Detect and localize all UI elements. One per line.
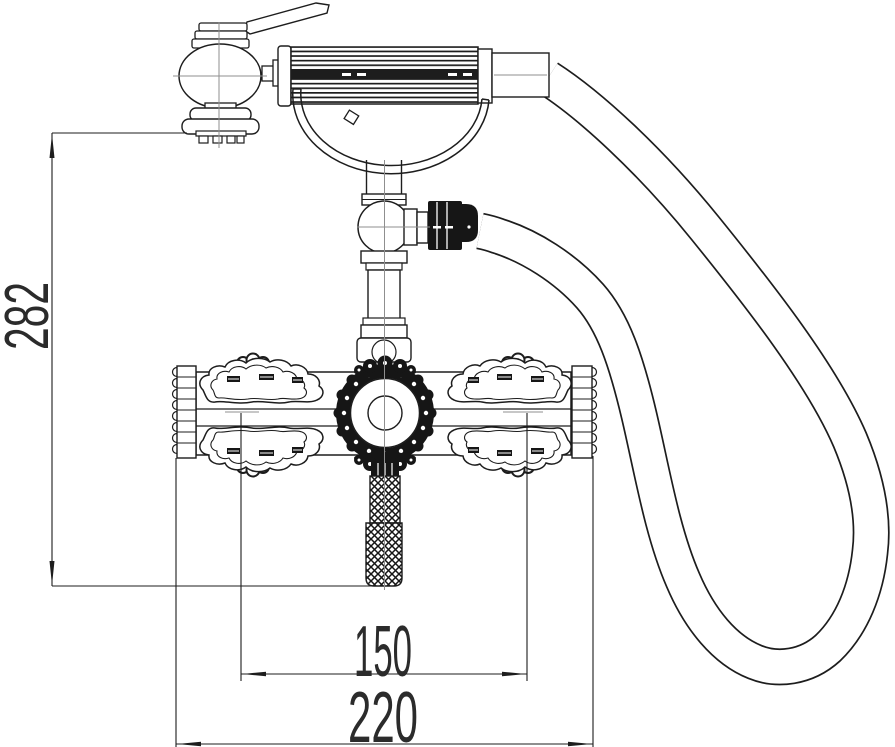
- hose-port-nut: [404, 201, 478, 250]
- dimension-label-282: 282: [0, 282, 62, 350]
- arrow-left-icon: [242, 672, 266, 677]
- dimension-282: 282: [0, 133, 374, 586]
- diverter-lever: [244, 3, 329, 34]
- arrow-up-icon: [50, 134, 55, 158]
- cloud-top-right: [448, 354, 571, 403]
- arrow-left-icon: [177, 742, 201, 747]
- faucet-drawing-canvas: 282 150 220: [0, 0, 895, 747]
- cloud-bottom-left: [200, 427, 323, 476]
- right-end-cap: [572, 366, 597, 458]
- arrow-right-icon: [502, 672, 526, 677]
- dimension-label-220: 220: [348, 678, 418, 747]
- cloud-bottom-right: [448, 427, 571, 476]
- technical-drawing-page: 282 150 220: [0, 0, 895, 747]
- diverter-tee: [354, 160, 478, 378]
- left-end-cap: [173, 366, 197, 458]
- arrow-down-icon: [50, 561, 55, 585]
- arrow-right-icon: [568, 742, 592, 747]
- spray-nozzles: [199, 136, 244, 143]
- cradle-clip: [344, 110, 359, 124]
- hand-shower-grip: [262, 46, 549, 106]
- cloud-top-left: [200, 354, 323, 403]
